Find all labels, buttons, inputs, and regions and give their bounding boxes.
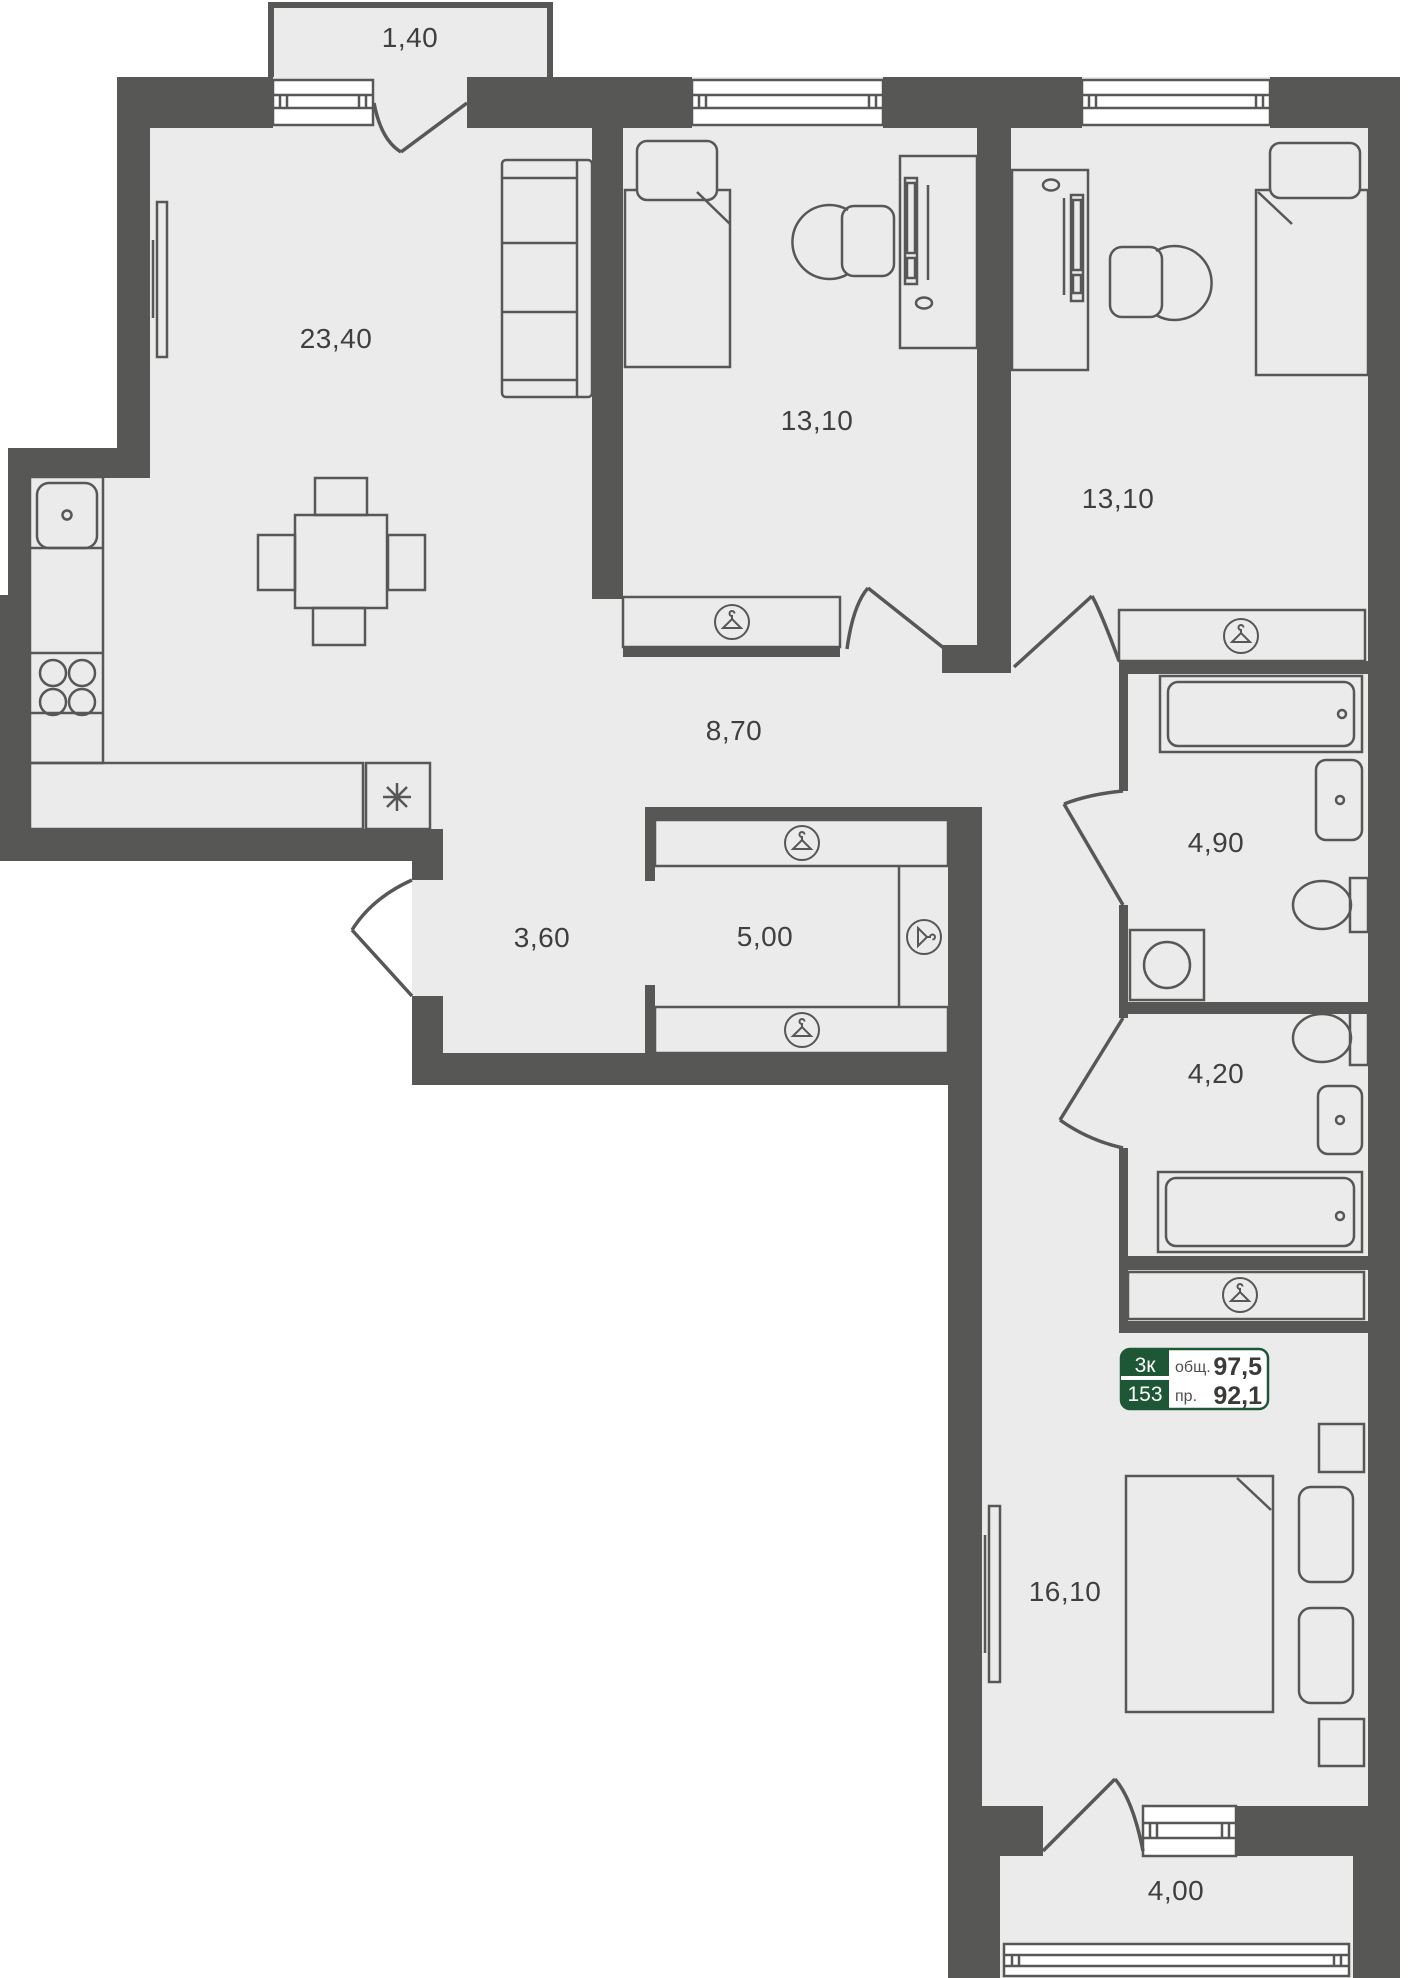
badge-room-count: 3к — [1135, 1354, 1157, 1377]
badge-reduced-label: пр. — [1175, 1388, 1197, 1405]
room-label-bedroom-left: 13,10 — [781, 405, 854, 436]
badge-total-label: общ. — [1175, 1359, 1211, 1376]
room-label-hall: 8,70 — [706, 715, 763, 746]
badge-total-value: 97,5 — [1213, 1353, 1262, 1381]
door-entrance — [352, 880, 412, 996]
room-label-bathroom-low: 4,20 — [1188, 1058, 1245, 1089]
room-label-bathroom-top: 4,90 — [1188, 827, 1245, 858]
window-kitchen — [273, 80, 373, 125]
room-label-bedroom-mid: 13,10 — [1082, 483, 1155, 514]
refrigerator-icon — [383, 783, 411, 811]
info-badge: 3к 153 общ. 97,5 пр. 92,1 — [1121, 1349, 1268, 1410]
floor-area — [0, 2, 1400, 1978]
window-bedroom-left — [692, 80, 883, 125]
window-master-balcony — [1143, 1806, 1236, 1856]
room-label-wardrobe: 5,00 — [737, 921, 794, 952]
floor-plan-svg: 1,40 23,40 13,10 13,10 8,70 4,90 3,60 5,… — [0, 0, 1410, 1978]
badge-unit-number: 153 — [1127, 1383, 1162, 1406]
room-label-balcony-bottom: 4,00 — [1148, 1875, 1205, 1906]
room-label-bedroom-master: 16,10 — [1029, 1576, 1102, 1607]
window-balcony-bottom — [1004, 1944, 1349, 1976]
floor-plan-page: 1,40 23,40 13,10 13,10 8,70 4,90 3,60 5,… — [0, 0, 1410, 1978]
room-label-corridor: 3,60 — [514, 922, 571, 953]
badge-reduced-value: 92,1 — [1213, 1382, 1262, 1410]
window-bedroom-mid — [1082, 80, 1270, 125]
room-label-living-kitchen: 23,40 — [300, 323, 373, 354]
room-label-balcony-top: 1,40 — [382, 22, 439, 53]
